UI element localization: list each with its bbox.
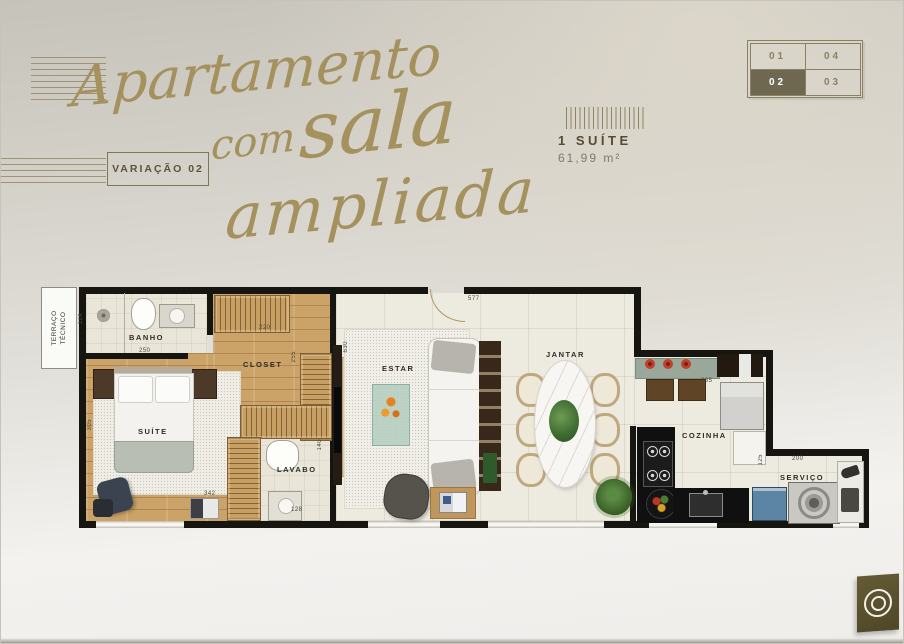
laundry-tank [752,487,787,521]
sink-lavabo [268,491,302,521]
stored-items [841,488,859,512]
wall-jantar-right [634,287,641,353]
unit-cell-04[interactable]: 04 [805,43,861,70]
label-suite: SUÍTE [138,427,168,436]
wardrobe-top [214,295,290,333]
dim-closet-height: 255 [291,351,297,363]
bar-stool [646,379,674,401]
sofa-pillow-top [431,340,477,374]
burner-icon [647,470,658,481]
dim-lavabo-height: 140 [317,439,323,451]
dim-estar-height: 630 [343,341,349,353]
coffee-station [717,354,763,377]
estar-side-table [430,487,476,519]
book-photo [443,496,451,504]
sink-banho [159,304,195,328]
bar-flower [645,359,655,369]
bed [114,373,194,451]
wardrobe-left-column [227,437,261,521]
fruit-bowl [646,489,676,519]
window-suite [96,521,184,528]
page-bottom-shadow [1,638,904,643]
dim-servico-width: 200 [792,456,804,462]
estar-shelf [479,341,501,491]
dim-suite-width: 342 [204,491,216,497]
window-estar [368,521,440,528]
shelf-plant [483,453,497,483]
pillow-left [118,376,153,403]
label-estar: ESTAR [382,364,414,373]
wall-service-top [766,449,869,456]
wall-banho-suite [86,353,188,359]
burner-icon [659,446,670,457]
tv-screen [334,387,341,453]
burner-icon [647,446,658,457]
washing-machine [788,482,840,524]
washer-door-icon [798,487,830,519]
iron-icon [840,464,860,479]
open-book [439,492,467,513]
variation-badge: VARIAÇÃO 02 [107,152,209,186]
unit-cell-02-active[interactable]: 02 [750,69,806,96]
label-lavabo: LAVABO [277,465,317,474]
wardrobe-bottom [240,405,332,439]
unit-type-label: 1 SUÍTE [558,133,632,148]
nightstand-right [191,369,217,399]
hatch-lines-suite-info [566,107,646,129]
dining-chair [590,373,620,407]
bar-flower [681,359,691,369]
brand-badge [857,574,899,633]
dim-banho-width: 250 [139,348,151,354]
label-closet: CLOSET [243,360,282,369]
label-banho: BANHO [129,333,164,342]
cooktop [643,441,673,487]
dim-banho-height: 124 [78,313,84,325]
unit-selector-grid: 01 04 02 03 [747,40,863,98]
label-cozinha: COZINHA [682,431,727,440]
table-centerpiece-plant [549,400,579,442]
kitchen-sink [689,493,723,517]
headline-word-ampliada: ampliada [224,153,539,254]
shower-drain-icon [97,309,110,322]
marketing-floorplan-page: Apartamento com sala ampliada VARIAÇÃO 0… [0,0,904,644]
inner-ring-icon [871,595,886,611]
terraco-tecnico-label: TERRAÇO TÉCNICO [44,299,74,357]
dim-closet-width: 220 [259,325,271,331]
terraco-tecnico-box: TERRAÇO TÉCNICO [41,287,77,369]
coffee-table [372,384,410,446]
wall-kitchen-back [630,426,636,521]
shower-divider [124,293,125,353]
dim-estar-width: 577 [468,296,480,302]
label-jantar: JANTAR [546,350,585,359]
unit-area-label: 61,99 m² [558,151,632,165]
unit-cell-01[interactable]: 01 [750,43,806,70]
bar-flower [663,359,673,369]
dim-lavabo-width: 128 [291,507,303,513]
bed-blanket [114,441,194,473]
wall-banho-closet [207,293,213,335]
suite-side-table [93,499,113,517]
wall-top-right [464,287,641,294]
sink-basin [169,308,185,324]
unit-selector-row-bottom: 02 03 [750,69,860,95]
unit-info: 1 SUÍTE 61,99 m² [558,133,632,165]
window-jantar [488,521,604,528]
suite-laptop [190,498,219,519]
headline-word-com: com [210,114,296,169]
refrigerator [720,382,764,430]
label-servico: SERVIÇO [780,473,824,482]
unit-cell-03[interactable]: 03 [805,69,861,96]
hatch-lines-mid-left [1,158,106,188]
faucet-icon [703,490,708,495]
dim-servico-height: 125 [758,454,764,466]
dim-cozinha-width: 235 [701,378,713,384]
burner-icon [659,470,670,481]
unit-selector-row-top: 01 04 [750,43,860,69]
concentric-rings-icon [864,588,892,618]
wall-bottom [79,521,869,528]
pillow-right [155,376,190,403]
toilet-banho [131,298,156,330]
wall-top-left [79,287,428,294]
dim-suite-height: 305 [87,419,93,431]
wall-kitchen-right [766,350,773,453]
service-shelving [837,461,864,523]
